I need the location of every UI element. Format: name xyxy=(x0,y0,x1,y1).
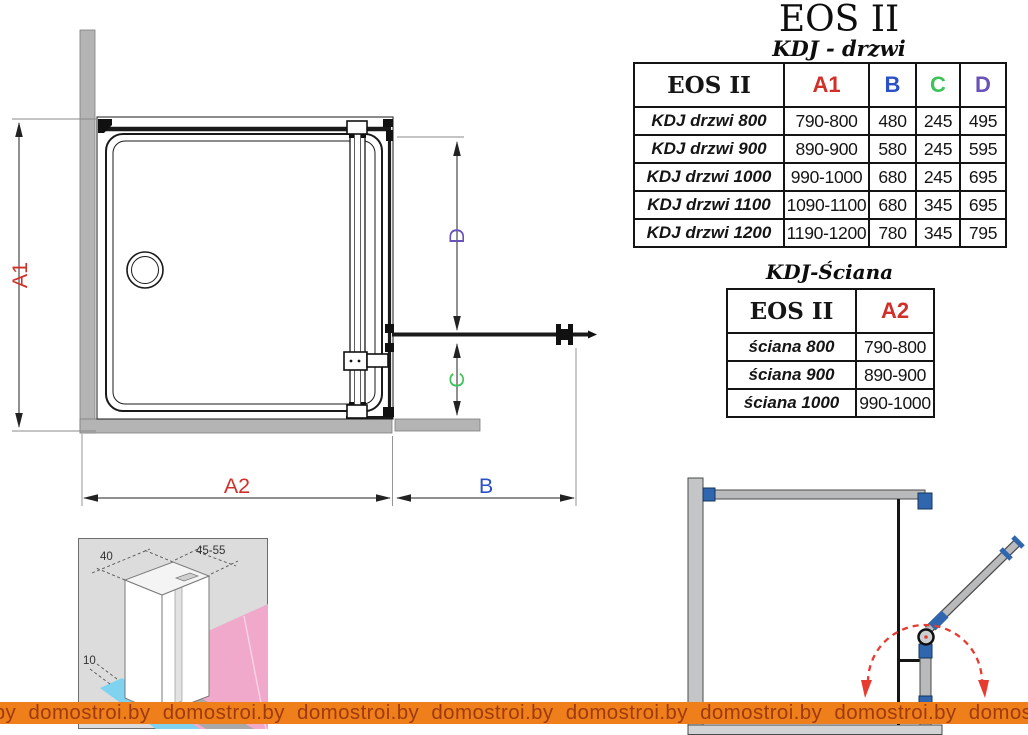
header-c: C xyxy=(916,63,960,107)
table-row: KDJ drzwi 1100 1090-1100 680 345 695 xyxy=(634,191,1006,219)
schematic-fixed-wall xyxy=(703,490,925,499)
swing-arrow-left xyxy=(861,680,872,698)
hinge-block xyxy=(932,614,945,627)
wall-connector xyxy=(703,488,715,501)
wall-profile-3d xyxy=(125,562,209,714)
door-swing-schematic xyxy=(660,460,1028,735)
header-d: D xyxy=(960,63,1006,107)
corner-bracket-bottom-right xyxy=(383,407,394,417)
profile-detail-inset: 40 45-55 10 xyxy=(78,538,268,729)
dim-label-a1: A1 xyxy=(8,262,32,288)
table-drzwi-title: KDJ - drzwi xyxy=(650,36,1028,61)
door-hinge-bottom xyxy=(385,343,394,352)
watermark-text: domostroi.by domostroi.by domostroi.by d… xyxy=(0,702,1028,724)
dim-label-b: B xyxy=(479,474,493,498)
table-row: KDJ drzwi 1000 990-1000 680 245 695 xyxy=(634,163,1006,191)
profile-depth-dim: 45-55 xyxy=(196,545,225,557)
door-hinge-top xyxy=(385,324,394,333)
table-row: ściana 800 790-800 xyxy=(727,333,934,361)
table-row: ściana 900 890-900 xyxy=(727,361,934,389)
profile-adjust-dim: 10 xyxy=(83,655,96,667)
profile-width-dim: 40 xyxy=(100,551,113,563)
schematic-side-glass xyxy=(897,499,900,725)
header-a2: A2 xyxy=(856,289,934,333)
floor-bar-left xyxy=(80,419,392,433)
header-a1: A1 xyxy=(784,63,869,107)
header-b: B xyxy=(869,63,916,107)
dim-label-c: C xyxy=(445,372,469,388)
table-drzwi: EOS II A1 B C D KDJ drzwi 800 790-800 48… xyxy=(633,62,1007,248)
shower-tray xyxy=(106,134,382,411)
door-tip xyxy=(588,331,597,339)
table-row: KDJ drzwi 900 890-900 580 245 595 xyxy=(634,135,1006,163)
plan-drawing: A1 A2 B D C xyxy=(0,0,640,520)
table-row: KDJ drzwi 1200 1190-1200 780 345 795 xyxy=(634,219,1006,247)
enclosure xyxy=(97,117,588,419)
page: A1 A2 B D C EOS II KDJ - drzwi KDJ-Ścian… xyxy=(0,0,1028,735)
corner-bracket-top-right xyxy=(383,119,393,127)
door-column xyxy=(350,127,365,418)
header-model: EOS II xyxy=(634,63,784,107)
table-header-row: EOS II A1 B C D xyxy=(634,63,1006,107)
table-sciana-title: KDJ-Ściana xyxy=(726,260,933,284)
schematic-wall-post xyxy=(688,478,703,726)
dim-label-a2: A2 xyxy=(224,474,250,498)
wall-left xyxy=(80,30,95,433)
dim-label-d: D xyxy=(445,228,469,244)
table-row: ściana 1000 990-1000 xyxy=(727,389,934,417)
floor-bar-right xyxy=(395,419,480,431)
swing-arrow-right xyxy=(978,680,989,698)
table-sciana: EOS II A2 ściana 800 790-800 ściana 900 … xyxy=(726,288,935,418)
table-header-row: EOS II A2 xyxy=(727,289,934,333)
schematic-floor xyxy=(688,725,942,735)
table-row: KDJ drzwi 800 790-800 480 245 495 xyxy=(634,107,1006,135)
watermark-strip: domostroi.by domostroi.by domostroi.by d… xyxy=(0,702,1028,724)
corner-connector xyxy=(918,493,932,509)
header-model: EOS II xyxy=(727,289,856,333)
